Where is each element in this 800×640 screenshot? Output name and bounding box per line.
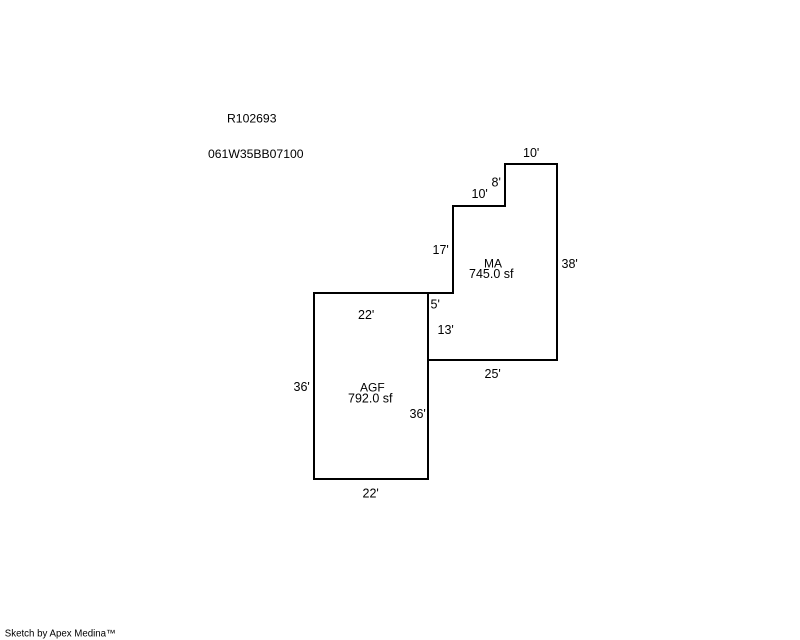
svg-text:22': 22' — [358, 308, 374, 322]
svg-text:36': 36' — [410, 407, 426, 421]
svg-text:10': 10' — [472, 187, 488, 201]
svg-text:25': 25' — [485, 367, 501, 381]
svg-text:Sketch by Apex Medina™: Sketch by Apex Medina™ — [5, 628, 116, 639]
svg-text:38': 38' — [562, 257, 578, 271]
svg-text:22': 22' — [363, 487, 379, 501]
svg-text:745.0 sf: 745.0 sf — [469, 267, 514, 281]
svg-text:8': 8' — [492, 176, 501, 190]
svg-text:792.0 sf: 792.0 sf — [348, 392, 393, 406]
svg-text:13': 13' — [438, 323, 454, 337]
svg-text:36': 36' — [294, 380, 310, 394]
svg-text:17': 17' — [433, 243, 449, 257]
svg-text:5': 5' — [431, 298, 440, 312]
svg-text:10': 10' — [523, 146, 539, 160]
svg-text:061W35BB07100: 061W35BB07100 — [208, 147, 304, 161]
svg-text:R102693: R102693 — [227, 112, 277, 126]
